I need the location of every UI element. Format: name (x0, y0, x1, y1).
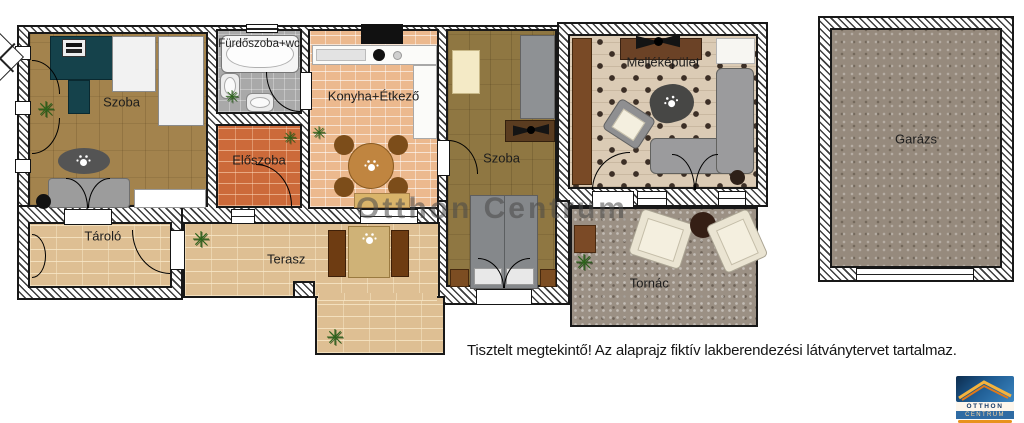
bed-single-2 (158, 36, 204, 126)
window (246, 24, 278, 33)
sofa-sectional-vertical (716, 68, 754, 174)
storage-label: Tároló (84, 229, 121, 244)
room-kitchen: ✳ Konyha+Étkező (308, 29, 439, 209)
sideboard-long (572, 38, 592, 185)
floor-pot (36, 194, 51, 209)
porch-label: Tornác (630, 276, 669, 291)
window (637, 191, 667, 206)
nightstand (450, 269, 469, 287)
sink (246, 93, 274, 112)
floorplan-canvas: ✳ Terasz ✳ ✳ Tornác ✳ Szoba (0, 0, 1024, 423)
oc-paw-icon (80, 159, 87, 166)
door-slab (134, 189, 206, 208)
terrace-join (318, 293, 437, 301)
door-gap (476, 289, 532, 305)
plant-icon: ✳ (326, 327, 344, 349)
terrace-label: Terasz (267, 251, 305, 266)
plant-icon: ✳ (37, 99, 55, 121)
room-garage: Garázs (830, 28, 1002, 268)
dark-pot (730, 170, 745, 185)
porch-armchair-left (628, 208, 694, 270)
dining-chair (388, 135, 408, 155)
rug (58, 148, 110, 174)
dining-chair (334, 177, 354, 197)
wall-post (15, 159, 31, 173)
garage-door (856, 268, 974, 281)
oc-paw-icon (366, 237, 373, 244)
plant-icon: ✳ (192, 229, 210, 251)
bed-single-1 (112, 36, 156, 92)
logo-roof-icon (956, 376, 1014, 402)
hallway-label: Előszoba (232, 152, 285, 167)
kitchen-counter-top (312, 45, 437, 65)
plant-icon: ✳ (283, 130, 297, 147)
plant-icon: ✳ (312, 125, 326, 142)
kitchen-sink (393, 51, 402, 60)
window (718, 191, 746, 206)
dining-chair (334, 135, 354, 155)
bedroom2-label: Szoba (483, 151, 520, 166)
outbuilding-label: Melléképület (627, 54, 700, 69)
terrace-area-lower: ✳ (315, 296, 445, 355)
stove-hood (361, 24, 403, 44)
window (231, 209, 255, 224)
ceiling-fan-hub (527, 126, 535, 134)
garage-label: Garázs (895, 131, 937, 146)
oc-paw-icon (667, 99, 675, 107)
room-outbuilding: Melléképület (568, 34, 758, 189)
porch-cabinet (574, 225, 596, 253)
otthon-centrum-logo: OTTHON CENTRUM (956, 376, 1014, 422)
logo-line1: OTTHON (956, 402, 1014, 411)
desk-chair (68, 80, 90, 114)
entry-door-gap (64, 209, 112, 225)
wall-post (15, 101, 31, 115)
tall-cabinet-cream (452, 50, 480, 94)
oc-paw-icon (368, 164, 375, 171)
disclaimer-text: Tisztelt megtekintő! Az alaprajz fiktív … (467, 342, 957, 359)
ceiling-fan-hub (654, 37, 663, 46)
door-gap (300, 72, 312, 110)
printer (62, 39, 86, 57)
logo-line2: CENTRUM (956, 411, 1014, 419)
wall-terrace-notch (293, 281, 315, 298)
terrace-bench-right (391, 230, 409, 277)
watermark: Otthon Centrum (356, 192, 628, 226)
nightstand (540, 269, 556, 287)
armchair-gray (602, 97, 657, 150)
kitchen-appliance (316, 49, 366, 61)
porch-armchair-right (705, 208, 768, 274)
bathroom-label: Fürdőszoba+wc (218, 38, 300, 50)
plant-icon: ✳ (225, 89, 239, 106)
cooktop-burner (373, 49, 385, 61)
terrace-bench-left (328, 230, 346, 277)
door-gap (170, 230, 185, 270)
bedroom1-label: Szoba (103, 95, 140, 110)
white-cabinet (716, 38, 755, 64)
kitchen-label: Konyha+Étkező (328, 89, 419, 104)
room-bedroom1: ✳ Szoba (28, 32, 208, 207)
wardrobe-gray (520, 35, 555, 119)
terrace-table (348, 226, 390, 278)
dining-table (348, 143, 394, 189)
plant-icon: ✳ (575, 252, 593, 274)
